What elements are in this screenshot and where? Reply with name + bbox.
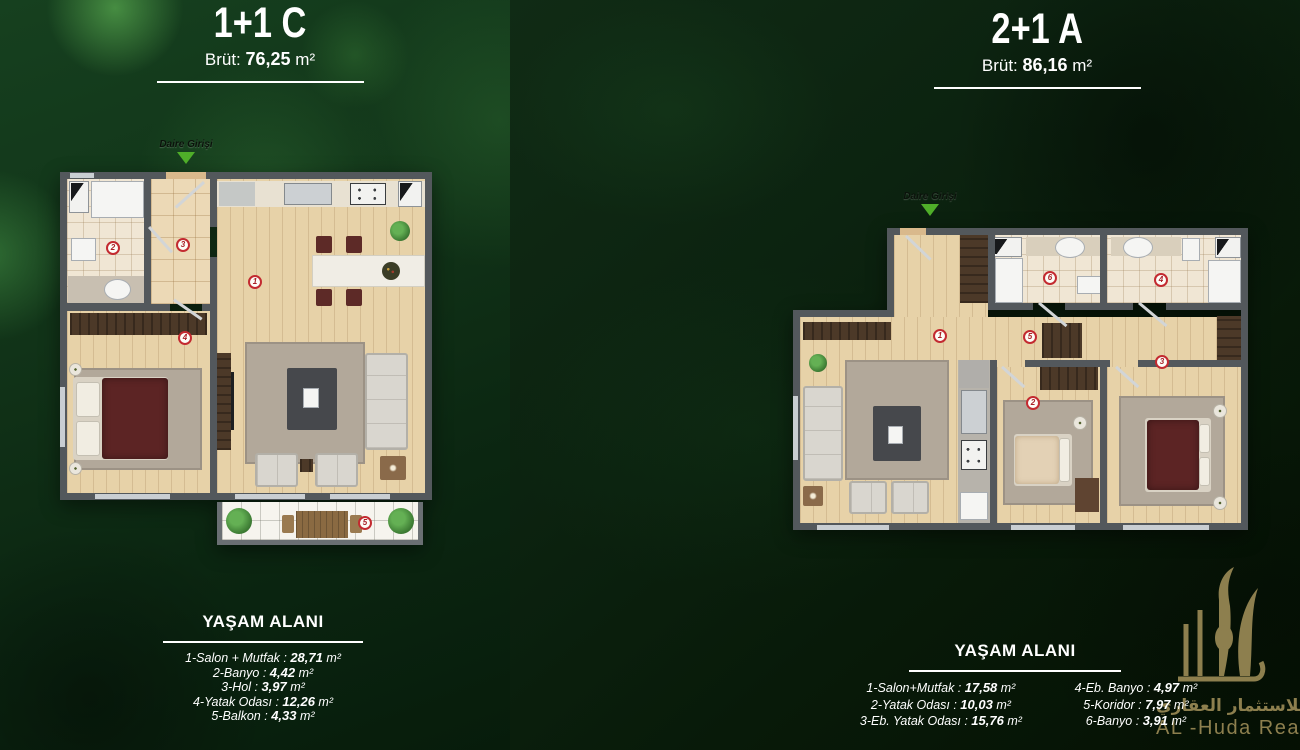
curtain-corner-icon: [1215, 237, 1241, 258]
nightstand: [69, 363, 82, 376]
room-list-item: 2-Banyo : 4,42 m²: [113, 666, 413, 681]
entrance-text: Daire Girişi: [865, 191, 995, 202]
room-area-value: 28,71: [290, 650, 323, 665]
washbasin: [1055, 237, 1085, 258]
room-label: 5-Koridor: [1083, 698, 1134, 712]
room-label: 2-Banyo: [213, 666, 260, 680]
room-area-unit: m²: [323, 651, 341, 665]
kitchen-sink: [284, 183, 332, 205]
room-area-unit: m²: [295, 666, 313, 680]
entry-wardrobe: [960, 235, 988, 303]
window: [95, 494, 170, 499]
wall: [425, 172, 432, 500]
room-marker: 3: [1155, 355, 1169, 369]
gross-value: 76,25: [246, 49, 291, 69]
wardrobe: [1217, 316, 1241, 366]
brochure-page: 1+1 C Brüt: 76,25 m² 2+1 A Brüt: 86,16 m…: [0, 0, 1300, 750]
balcony-wall: [418, 502, 423, 545]
gross-unit: m²: [291, 50, 316, 69]
entrance-arrow-icon: [177, 152, 195, 164]
sofa: [365, 353, 408, 450]
refrigerator: [960, 492, 988, 520]
dining-table: [312, 255, 425, 287]
list-divider: [163, 641, 363, 643]
separator: :: [1132, 714, 1142, 728]
room-marker: 6: [1043, 271, 1057, 285]
window: [70, 173, 94, 178]
window: [330, 494, 390, 499]
wall: [206, 172, 432, 179]
room-area-value: 7,97: [1145, 697, 1170, 712]
room-marker: 2: [1026, 396, 1040, 410]
wall: [144, 179, 151, 303]
floor-lamp-table: [380, 456, 406, 480]
wall: [887, 228, 894, 317]
room-list: 1-Salon + Mutfak : 28,71 m² 2-Banyo : 4,…: [113, 651, 413, 724]
room-area-value: 15,76: [971, 713, 1004, 728]
dining-chair: [346, 289, 362, 306]
room-marker: 1: [248, 275, 262, 289]
wall: [60, 303, 151, 311]
plant: [390, 221, 410, 241]
unit-left-title: 1+1 C: [214, 2, 307, 45]
room-list-item: 5-Koridor : 7,97 m²: [1062, 697, 1210, 714]
nightstand: [1073, 416, 1087, 430]
room-list-item: 4-Eb. Banyo : 4,97 m²: [1062, 680, 1210, 697]
washbasin: [1123, 237, 1153, 258]
area-list-heading: YAŞAM ALANI: [113, 612, 413, 632]
room-area-value: 4,33: [271, 708, 296, 723]
plant: [809, 354, 827, 372]
wall: [995, 303, 1033, 310]
separator: :: [954, 681, 964, 695]
room-area-unit: m²: [315, 695, 333, 709]
kitchen-cabinet: [959, 360, 989, 388]
floor-lamp-table: [803, 486, 823, 506]
wall: [926, 228, 1248, 235]
room-marker: 1: [933, 329, 947, 343]
room-area-unit: m²: [1004, 714, 1022, 728]
room-label: 1-Salon + Mutfak: [185, 651, 280, 665]
room-area-unit: m²: [287, 680, 305, 694]
room-marker: 2: [106, 241, 120, 255]
room-list-item: 1-Salon+Mutfak : 17,58 m²: [820, 680, 1062, 697]
washing-machine: [71, 238, 96, 261]
header-divider: [934, 87, 1141, 89]
floorplan-2plus1a: 1 2 3 4 5 6: [793, 228, 1255, 535]
entrance-door: [900, 228, 926, 235]
room-label: 2-Yatak Odası: [871, 698, 950, 712]
washbasin: [104, 279, 131, 300]
room-list-item: 4-Yatak Odası : 12,26 m²: [113, 695, 413, 710]
room-list-item: 5-Balkon : 4,33 m²: [113, 709, 413, 724]
gross-label: Brüt:: [205, 50, 241, 69]
wall: [988, 228, 995, 310]
window: [793, 396, 798, 460]
nightstand: [1213, 496, 1227, 510]
separator: :: [251, 680, 261, 694]
room-list-column2: 4-Eb. Banyo : 4,97 m² 5-Koridor : 7,97 m…: [1062, 680, 1210, 730]
kitchen-sink: [961, 390, 987, 434]
gross-value: 86,16: [1023, 55, 1068, 75]
room-area-value: 3,91: [1143, 713, 1168, 728]
separator: :: [280, 651, 290, 665]
wall: [1025, 360, 1110, 367]
wall: [202, 304, 210, 311]
armchair: [255, 453, 298, 487]
unit-left-gross-area: Brüt: 76,25 m²: [110, 49, 410, 70]
nightstand: [1213, 404, 1227, 418]
separator: :: [961, 714, 971, 728]
armchair: [315, 453, 358, 487]
unit-right-header: 2+1 A Brüt: 86,16 m²: [887, 8, 1187, 89]
shower: [1208, 260, 1241, 303]
unit-left-header: 1+1 C Brüt: 76,25 m²: [110, 2, 410, 83]
room-area-value: 3,97: [261, 679, 286, 694]
stove: [961, 440, 987, 470]
separator: :: [261, 709, 271, 723]
sideboard: [803, 322, 891, 340]
room-marker: 4: [1154, 273, 1168, 287]
balcony-wall: [217, 540, 423, 545]
balcony-plant: [226, 508, 252, 534]
room-area-unit: m²: [1179, 681, 1197, 695]
entrance-arrow-icon: [921, 204, 939, 216]
wall: [1166, 303, 1241, 310]
wall: [990, 360, 997, 523]
separator: :: [1135, 698, 1145, 712]
room-area-value: 12,26: [282, 694, 315, 709]
room-list-item: 3-Hol : 3,97 m²: [113, 680, 413, 695]
room-list-item: 6-Banyo : 3,91 m²: [1062, 713, 1210, 730]
room-area-value: 17,58: [965, 680, 998, 695]
balcony-wall: [217, 502, 222, 545]
corridor-wardrobe: [1042, 323, 1082, 358]
wall: [1100, 367, 1107, 523]
shower-curtain-icon: [69, 181, 89, 213]
pillow: [76, 421, 100, 456]
armchair: [849, 481, 887, 514]
window: [60, 387, 65, 447]
fruit-bowl: [382, 262, 400, 280]
wall: [60, 172, 67, 500]
wall: [210, 172, 217, 227]
separator: :: [272, 695, 282, 709]
room-list-columns: 1-Salon+Mutfak : 17,58 m² 2-Yatak Odası …: [820, 680, 1210, 730]
separator: :: [950, 698, 960, 712]
dresser: [1075, 478, 1099, 512]
floorplan-1plus1c: 1 2 3 4 5: [60, 172, 432, 545]
area-list-left: YAŞAM ALANI 1-Salon + Mutfak : 28,71 m² …: [113, 612, 413, 724]
header-divider: [157, 81, 364, 83]
room-label: 5-Balkon: [211, 709, 260, 723]
dining-chair: [316, 289, 332, 306]
side-table: [300, 459, 313, 472]
entrance-label-left: Daire Girişi: [121, 139, 251, 164]
room-marker: 5: [358, 516, 372, 530]
gross-label: Brüt:: [982, 56, 1018, 75]
tv-screen: [231, 372, 234, 430]
towel-cabinet: [1182, 238, 1200, 261]
tv-unit: [217, 353, 231, 450]
wall: [793, 310, 894, 317]
separator: :: [259, 666, 269, 680]
room-area-unit: m²: [993, 698, 1011, 712]
bed: [1147, 420, 1199, 490]
room-area-unit: m²: [297, 709, 315, 723]
kitchen-cabinet: [219, 182, 255, 206]
wall: [1100, 228, 1107, 310]
unit-right-title: 2+1 A: [991, 8, 1082, 51]
balcony-table: [296, 511, 348, 538]
balcony-plant: [388, 508, 414, 534]
room-label: 1-Salon+Mutfak: [866, 681, 954, 695]
window: [1123, 525, 1209, 530]
window: [1011, 525, 1075, 530]
list-divider: [909, 670, 1121, 672]
pillow: [1199, 424, 1210, 453]
room-area-unit: m²: [1170, 698, 1188, 712]
bathtub: [91, 181, 144, 218]
table-decor: [303, 388, 319, 408]
room-marker: 3: [176, 238, 190, 252]
gross-unit: m²: [1068, 56, 1093, 75]
entrance-text: Daire Girişi: [121, 139, 251, 150]
pillow: [1059, 438, 1070, 482]
area-list-right: YAŞAM ALANI 1-Salon+Mutfak : 17,58 m² 2-…: [820, 641, 1210, 730]
table-decor: [888, 426, 903, 444]
room-marker: 5: [1023, 330, 1037, 344]
window: [817, 525, 889, 530]
room-area-value: 4,42: [270, 665, 295, 680]
bed: [102, 378, 168, 459]
room-list-item: 3-Eb. Yatak Odası : 15,76 m²: [820, 713, 1062, 730]
room-area-value: 4,97: [1154, 680, 1179, 695]
room-label: 3-Hol: [221, 680, 251, 694]
separator: :: [1143, 681, 1153, 695]
balcony-chair: [282, 515, 294, 533]
wall: [210, 257, 217, 500]
wall: [151, 304, 170, 311]
room-label: 4-Eb. Banyo: [1075, 681, 1144, 695]
shower: [995, 258, 1023, 303]
room-label: 6-Banyo: [1086, 714, 1133, 728]
curtain-corner-icon: [992, 237, 1022, 257]
pillow: [1199, 457, 1210, 486]
pillow: [76, 382, 100, 417]
entrance-label-right: Daire Girişi: [865, 191, 995, 216]
room-list-column1: 1-Salon+Mutfak : 17,58 m² 2-Yatak Odası …: [820, 680, 1062, 730]
unit-right-gross-area: Brüt: 86,16 m²: [887, 55, 1187, 76]
bed: [1015, 436, 1059, 484]
room-area-unit: m²: [1168, 714, 1186, 728]
room-label: 4-Yatak Odası: [193, 695, 272, 709]
room-marker: 4: [178, 331, 192, 345]
curtain-corner-icon: [398, 181, 422, 207]
wall: [1138, 360, 1241, 367]
room-list-item: 2-Yatak Odası : 10,03 m²: [820, 697, 1062, 714]
dining-chair: [346, 236, 362, 253]
area-list-heading: YAŞAM ALANI: [820, 641, 1210, 661]
armchair: [891, 481, 929, 514]
balcony-door: [235, 494, 305, 499]
room-area-value: 10,03: [960, 697, 993, 712]
wall: [1065, 303, 1133, 310]
entrance-door: [166, 172, 206, 179]
room-label: 3-Eb. Yatak Odası: [860, 714, 961, 728]
nightstand: [69, 462, 82, 475]
toilet: [1077, 276, 1101, 294]
stove: [350, 183, 386, 205]
sofa: [803, 386, 843, 481]
wardrobe: [1040, 367, 1098, 390]
room-list-item: 1-Salon + Mutfak : 28,71 m²: [113, 651, 413, 666]
wall: [1241, 228, 1248, 530]
dining-chair: [316, 236, 332, 253]
room-area-unit: m²: [997, 681, 1015, 695]
